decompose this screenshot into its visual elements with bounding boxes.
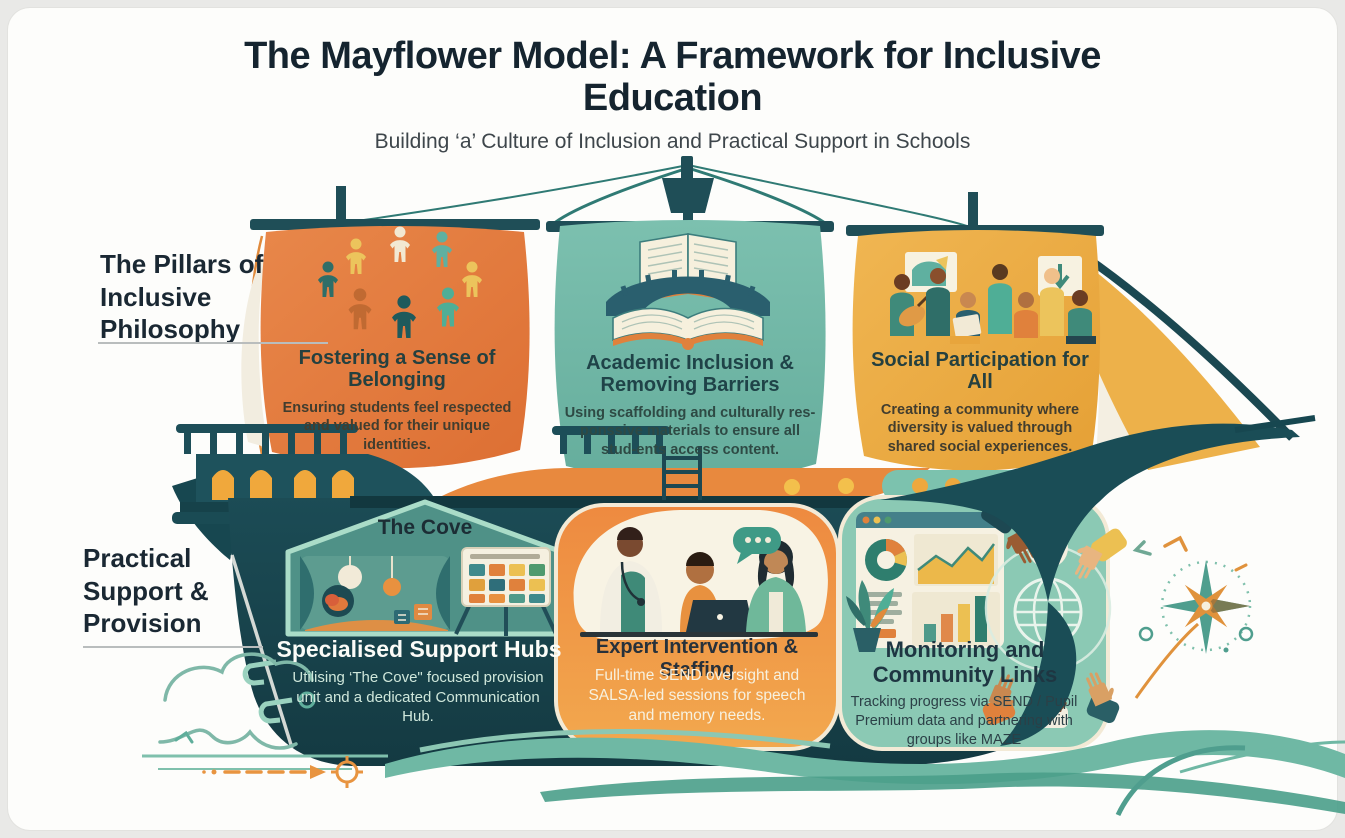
hull-card-monitoring-title: Monitoring and Community Links: [846, 637, 1084, 688]
sail-description: Creating a community where diversity is …: [864, 401, 1096, 457]
crows-nest: [662, 178, 714, 213]
sail-card-social: Social Participation for All Creating a …: [864, 349, 1096, 456]
sail-card-academic: Academic Inclusion & Removing Barriers U…: [562, 352, 818, 459]
hull-card-expert-description: Full-time SEND oversight and SALSA-led s…: [576, 666, 818, 726]
section-label-philosophy: The Pillars of Inclusive Philosophy: [100, 248, 265, 346]
page-title: The Mayflower Model: A Framework for Inc…: [170, 36, 1175, 120]
sail-title: Academic Inclusion & Removing Barriers: [562, 352, 818, 397]
infographic: The Mayflower Model: A Framework for Inc…: [0, 0, 1345, 838]
hull-card-monitoring-description: Tracking progress via SEND / Pupil Premi…: [838, 693, 1090, 750]
sail-card-belonging: Fostering a Sense of Belonging Ensuring …: [274, 347, 520, 454]
consultation-icon: [574, 510, 828, 640]
cove-panel-title: The Cove: [340, 516, 510, 540]
practical-underline: [83, 646, 263, 648]
hull-card-support-hubs-title: Specialised Support Hubs: [266, 636, 572, 663]
philosophy-underline: [98, 342, 328, 344]
sail-title: Social Participation for All: [864, 349, 1096, 394]
sail-description: Ensuring students feel respected and val…: [274, 399, 520, 455]
hull-card-support-hubs-description: Utilising ‘The Cove" focused provision u…: [286, 668, 550, 727]
cove-room-icon: [300, 556, 450, 631]
page-subtitle: Building ‘a’ Culture of Inclusion and Pr…: [170, 130, 1175, 154]
compass-rose-icon: [1136, 538, 1252, 698]
sail-description: Using scaffolding and culturally res-pon…: [562, 404, 818, 460]
section-label-practical: Practical Support & Provision: [83, 542, 258, 640]
sail-title: Fostering a Sense of Belonging: [274, 347, 520, 392]
